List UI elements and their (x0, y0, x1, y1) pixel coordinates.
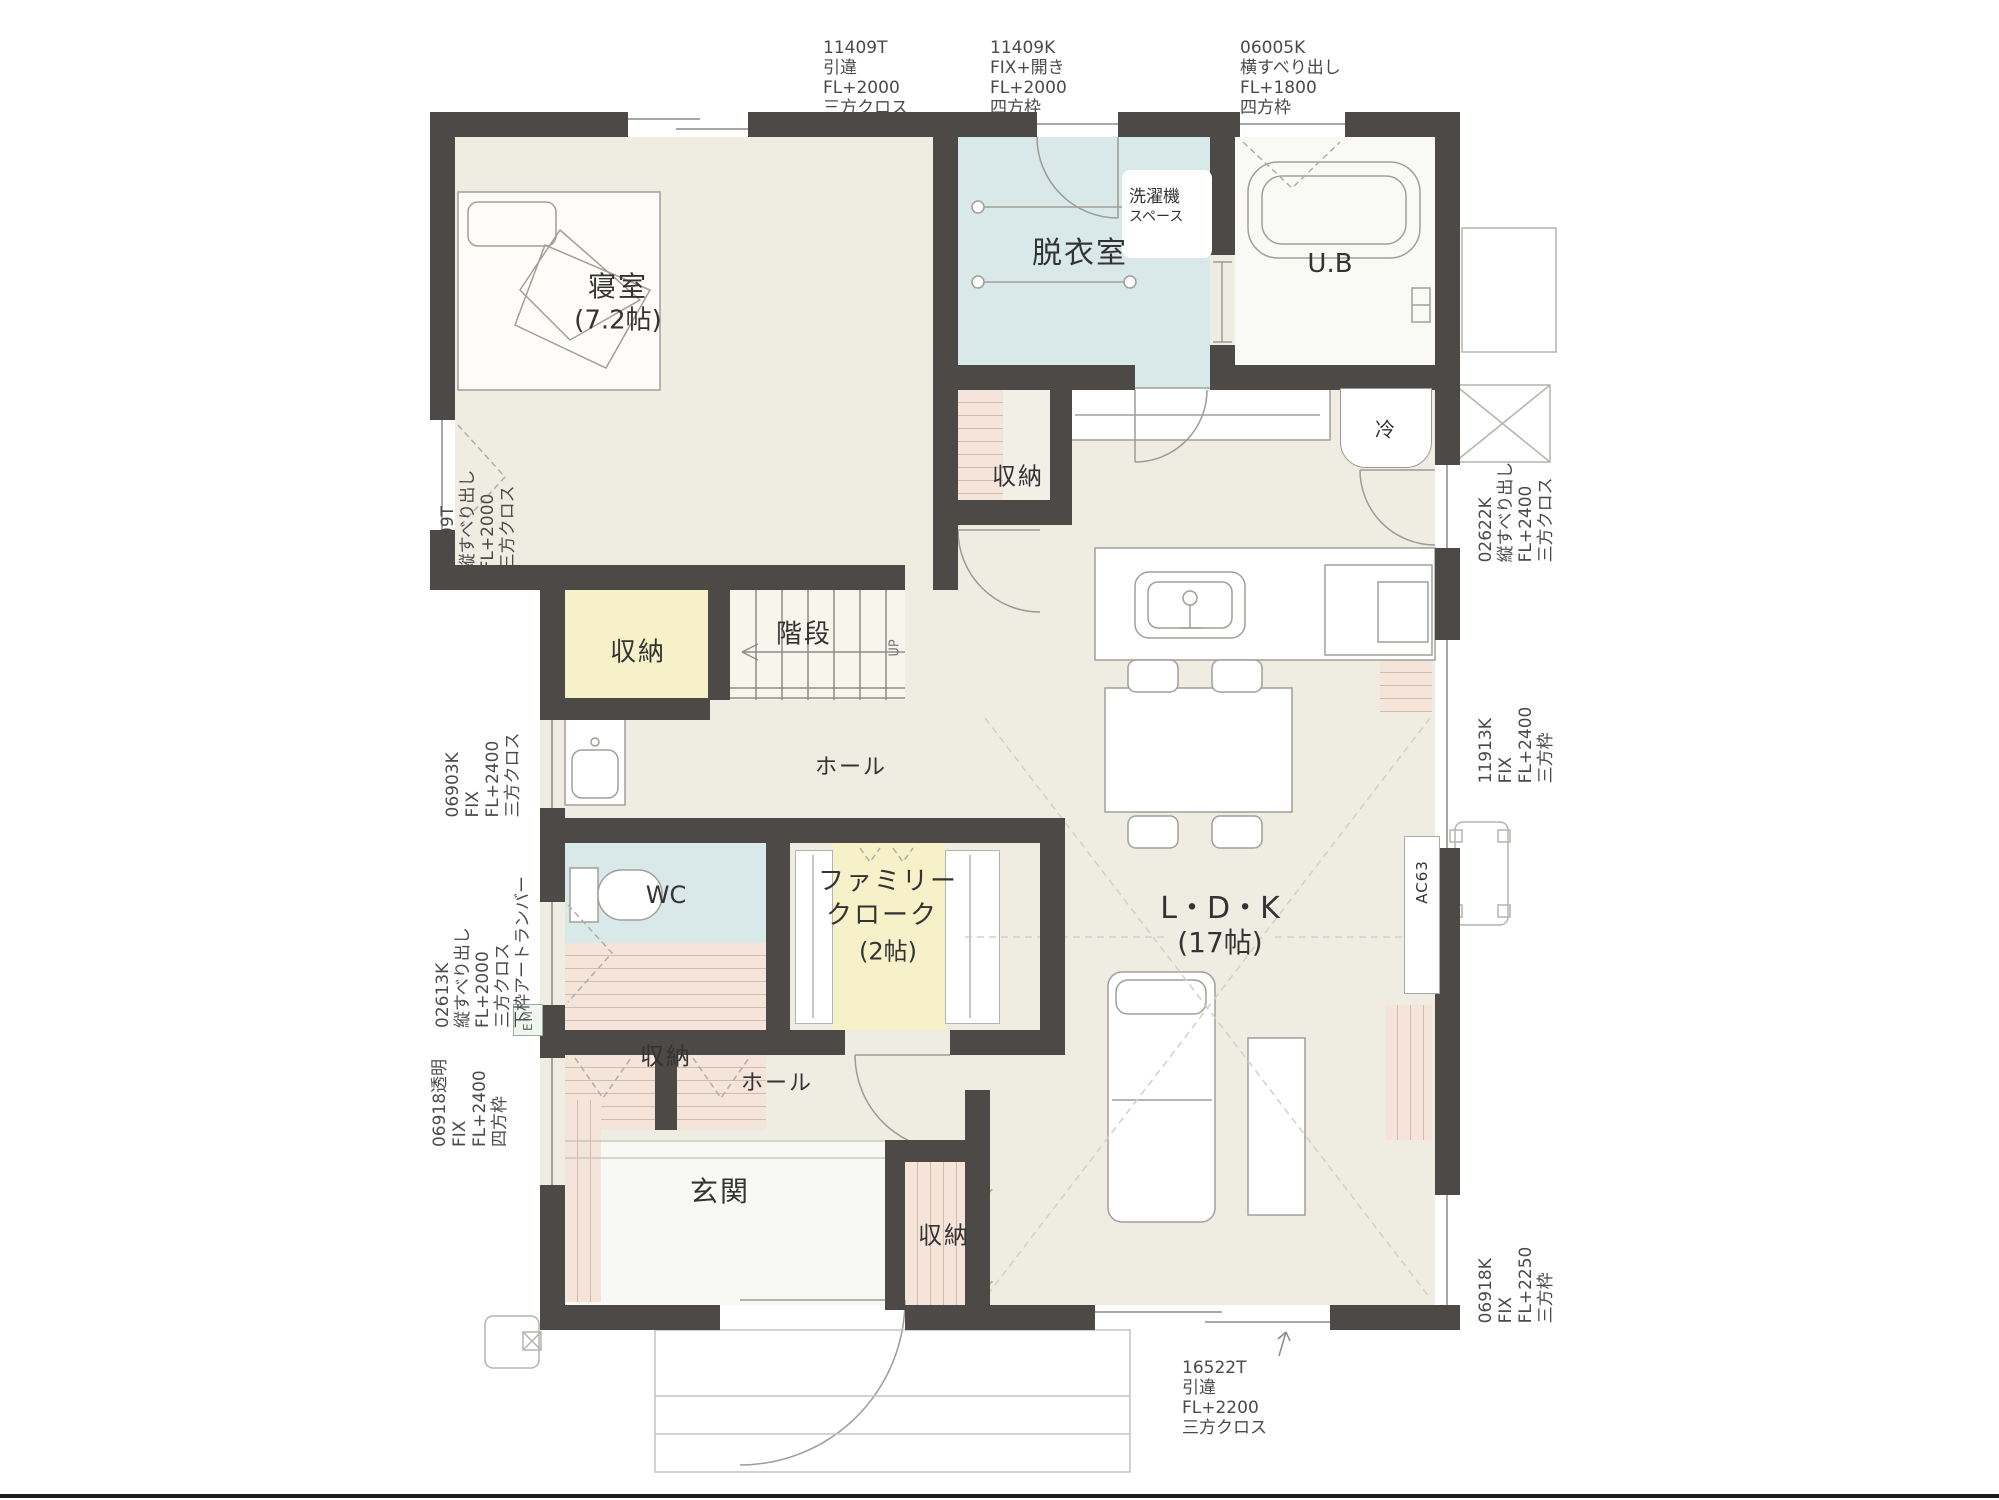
plan-linework (0, 0, 1999, 1500)
floor-plan: 洗濯機 スペース 冷 AC63 EM 寝室 (7.2帖) 脱衣室 U.B 収納 … (0, 0, 1999, 1500)
wall-segment (1210, 137, 1235, 255)
wall-segment (958, 500, 1050, 525)
label-entrance: 玄関 (690, 1170, 750, 1210)
label-dressing: 脱衣室 (1032, 228, 1128, 272)
annotation-06009T: 06009T 縦すべり出し FL+2000 三方クロス (438, 470, 518, 571)
annotation-06005K: 06005K 横すべり出し FL+1800 四方枠 (1240, 38, 1341, 118)
label-closet-lower: 収納 (640, 1037, 692, 1072)
ac-unit: AC63 (1404, 836, 1440, 994)
refrigerator: 冷 (1340, 388, 1432, 468)
kitchen-counter (1065, 388, 1330, 440)
wall-segment (965, 1090, 990, 1305)
wall-segment (1040, 843, 1065, 1055)
door-arcs (740, 137, 1435, 1465)
label-family-cloak-3: (2帖) (859, 932, 917, 967)
sofa (1108, 972, 1215, 1222)
label-hall-lower: ホール (741, 1065, 813, 1097)
wall-segment (540, 698, 710, 720)
refrigerator-label: 冷 (1375, 414, 1397, 443)
annotation-06903K: 06903K FIX FL+2400 三方クロス (443, 733, 523, 818)
annotation-arrow (1278, 1332, 1290, 1356)
kitchen-island (1095, 548, 1435, 660)
annotation-11409K: 11409K FIX+開き FL+2000 四方枠 (990, 38, 1067, 118)
wall-segment (885, 1162, 905, 1310)
wall-segment (905, 1305, 1095, 1330)
label-ldk-size: (17帖) (1177, 921, 1262, 961)
label-closet-top: 収納 (992, 457, 1044, 492)
annotation-11913K: 11913K FIX FL+2400 三方枠 (1476, 707, 1556, 784)
wall-segment (766, 1030, 845, 1055)
wall-segment (1210, 365, 1435, 390)
label-closet-entrance: 収納 (918, 1216, 970, 1251)
wall-segment (708, 590, 730, 700)
wall-segment (540, 818, 1065, 843)
annotation-06918-clear: 06918透明 FIX FL+2400 四方枠 (430, 1059, 510, 1147)
wall-segment (766, 843, 790, 1030)
laundry-label-2: スペース (1129, 206, 1183, 226)
wall-segment (540, 590, 565, 712)
label-wc: WC (646, 881, 687, 909)
wall-segment (1050, 390, 1072, 525)
wall-segment (1118, 112, 1240, 137)
wall-segment (1435, 548, 1460, 640)
outdoor-table (1455, 822, 1508, 925)
ac-label: AC63 (1413, 860, 1431, 904)
wall-segment (1345, 112, 1460, 137)
wall-segment (958, 365, 1135, 390)
label-bath: U.B (1307, 249, 1352, 279)
water-heater (1462, 228, 1556, 352)
wall-segment (1330, 1305, 1460, 1330)
label-hall-upper: ホール (815, 749, 887, 781)
washing-machine-space: 洗濯機 スペース (1122, 170, 1212, 258)
label-stairs-up: UP (888, 639, 903, 656)
wall-segment (540, 1305, 720, 1330)
dining-set (1105, 660, 1292, 848)
porch (655, 1330, 1130, 1472)
annotation-02622K: 02622K 縦すべり出し FL+2400 三方クロス (1476, 462, 1556, 563)
coffee-table (1248, 1038, 1305, 1215)
label-family-cloak-1: ファミリー (818, 861, 958, 898)
annotation-06918K: 06918K FIX FL+2250 三方枠 (1476, 1247, 1556, 1324)
bathtub (1248, 162, 1430, 322)
wall-segment (1435, 137, 1460, 465)
annotation-02613K: 02613K 縦すべり出し FL+2000 三方クロス 下枠アートランバー (433, 876, 533, 1028)
wall-segment (950, 1030, 1065, 1055)
annotation-16522T: 16522T 引違 FL+2200 三方クロス (1182, 1358, 1267, 1438)
label-bedroom-size: (7.2帖) (574, 300, 662, 337)
label-family-cloak-2: クローク (826, 895, 938, 932)
bottom-border (0, 1494, 1999, 1498)
entrance-step (565, 1141, 885, 1158)
label-stairs: 階段 (776, 614, 832, 651)
annotation-11409T: 11409T 引違 FL+2000 三方クロス (823, 38, 908, 118)
vanity (565, 715, 625, 805)
wall-segment (933, 137, 958, 590)
laundry-label-1: 洗濯機 (1129, 182, 1180, 207)
wall-segment (430, 137, 455, 420)
label-closet-yellow: 収納 (610, 632, 666, 669)
wall-segment (430, 112, 628, 137)
bath-door (1213, 262, 1232, 342)
